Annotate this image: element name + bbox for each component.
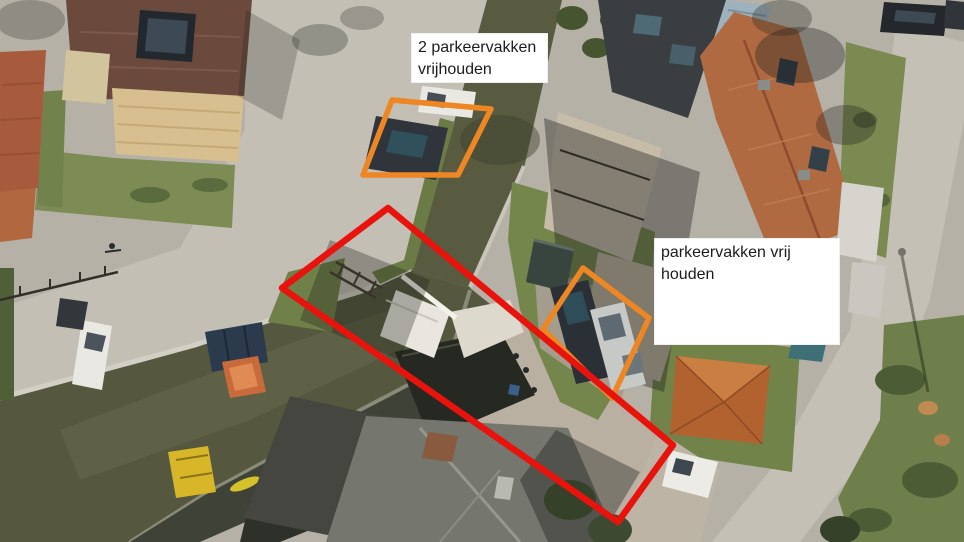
note-line-2: vrijhouden [418, 59, 541, 81]
note-line-1: parkeervakken vrij [661, 242, 833, 264]
note-line-2: houden [661, 264, 833, 286]
note-keep-parking-spaces: parkeervakken vrij houden [654, 238, 840, 345]
orange-parking-zone-top [363, 100, 491, 175]
note-keep-2-parking-spaces: 2 parkeervakken vrijhouden [411, 33, 548, 83]
annotated-aerial-screenshot: 2 parkeervakken vrijhouden parkeervakken… [0, 0, 964, 542]
red-clearance-corridor [282, 208, 673, 522]
note-line-1: 2 parkeervakken [418, 37, 541, 59]
